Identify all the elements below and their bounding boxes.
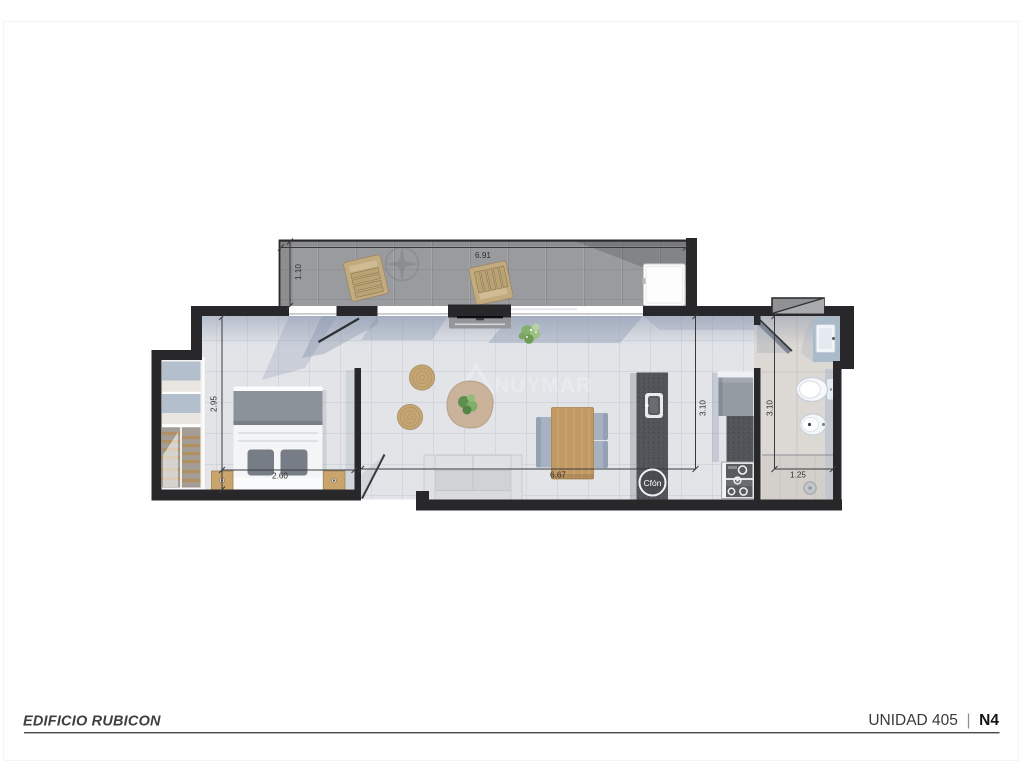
svg-text:6.91: 6.91: [475, 251, 491, 260]
svg-text:NUYMAR: NUYMAR: [494, 374, 592, 397]
svg-text:3.10: 3.10: [766, 400, 775, 416]
svg-text:UNIDAD 405 | N4: UNIDAD 405 | N4: [868, 712, 999, 729]
svg-text:Cfón: Cfón: [644, 478, 662, 488]
svg-text:EDIFICIO RUBICON: EDIFICIO RUBICON: [23, 714, 161, 730]
svg-text:6.67: 6.67: [550, 471, 566, 480]
svg-text:1.10: 1.10: [294, 264, 303, 280]
svg-text:2.60: 2.60: [272, 472, 288, 481]
svg-text:2.95: 2.95: [210, 396, 219, 412]
svg-text:3.10: 3.10: [699, 400, 708, 416]
svg-text:1.25: 1.25: [790, 471, 806, 480]
